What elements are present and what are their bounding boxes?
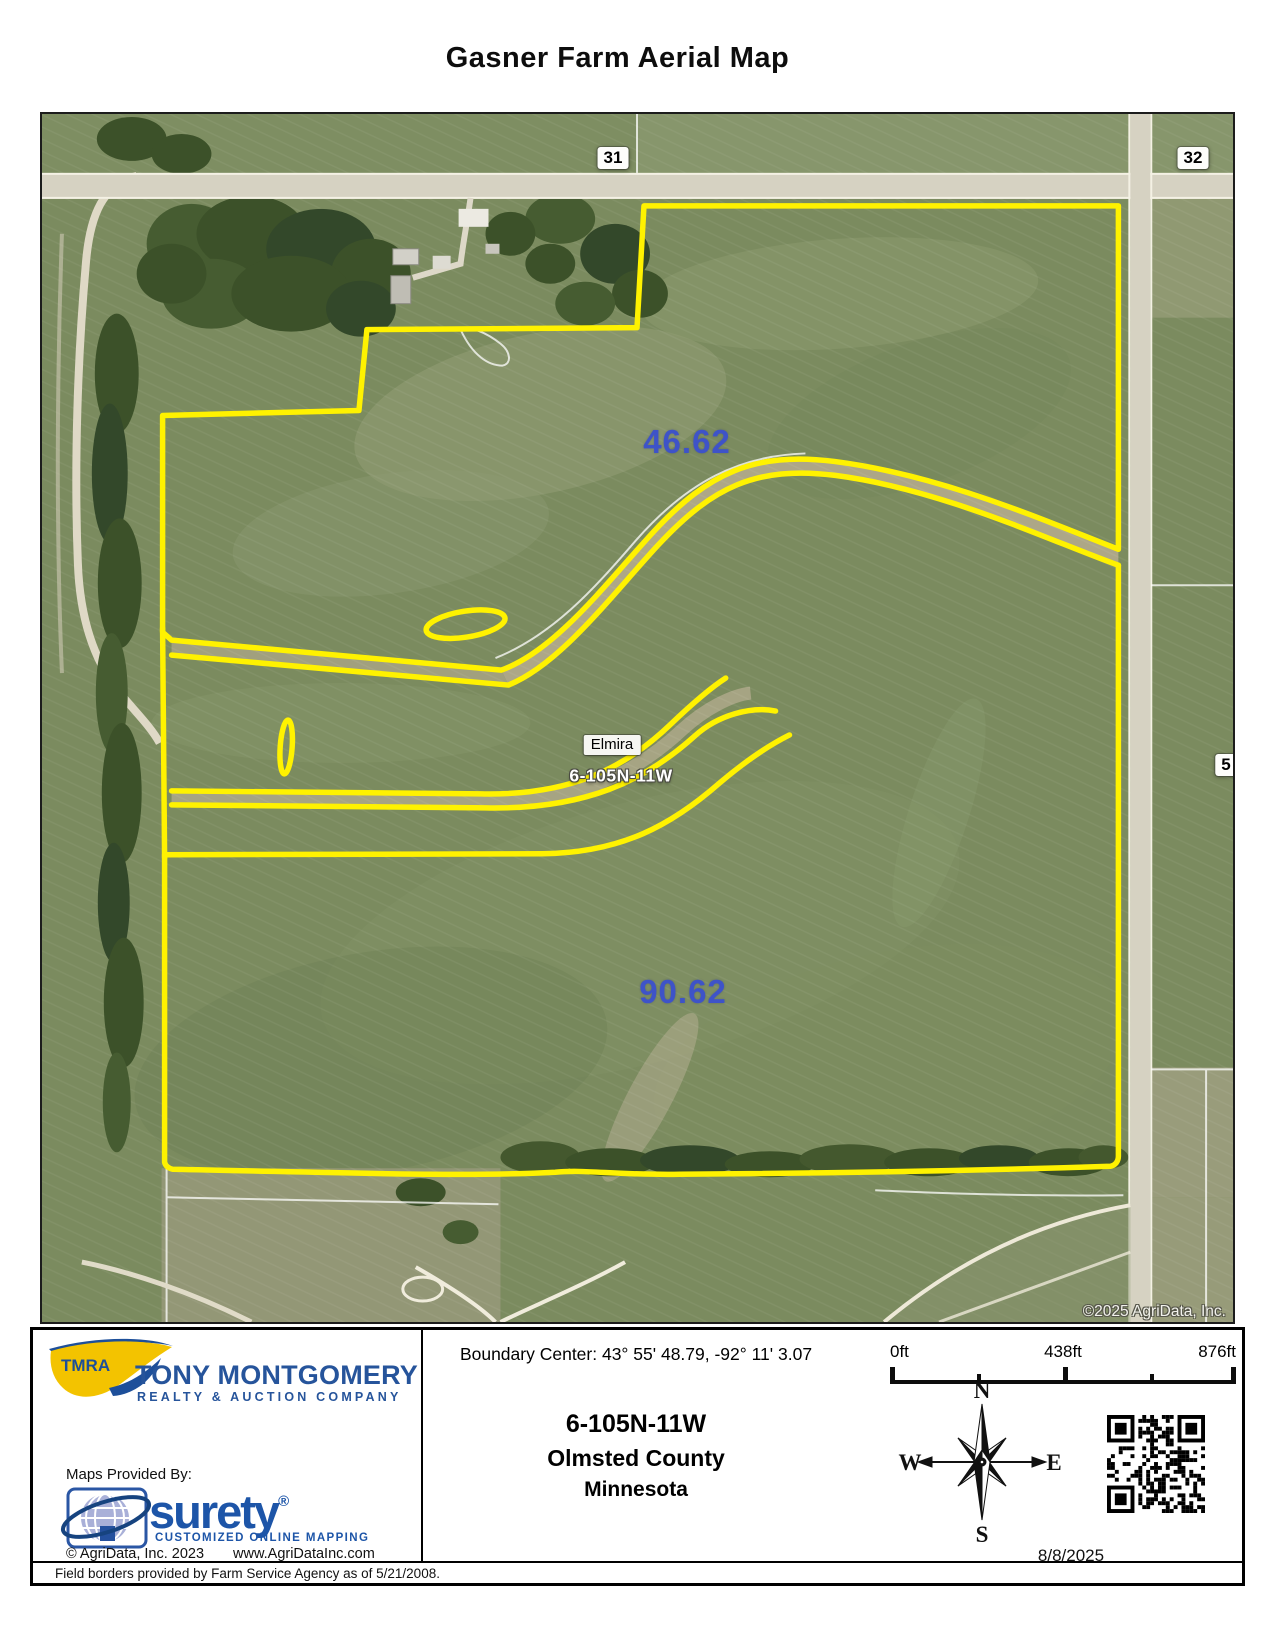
footer-panel: TMRA TONY MONTGOMERY REALTY & AUCTION CO… (30, 1327, 1245, 1586)
location-state: Minnesota (424, 1478, 848, 1502)
aerial-terrain-graphic (42, 114, 1233, 1322)
scale-label-start: 0ft (890, 1342, 909, 1362)
brand-tagline: REALTY & AUCTION COMPANY (137, 1390, 437, 1404)
agridata-website: www.AgriDataInc.com (233, 1546, 375, 1562)
compass-north-label: N (974, 1378, 991, 1403)
compass-south-label: S (976, 1522, 989, 1547)
qr-code-pattern (1107, 1415, 1205, 1513)
brand-company-name: TONY MONTGOMERY (135, 1360, 435, 1391)
road-label-5: 5 (1215, 754, 1235, 776)
acreage-label-north: 46.62 (643, 423, 731, 461)
compass-west-label: W (899, 1450, 922, 1475)
township-label: 6-105N-11W (569, 766, 672, 787)
agridata-copyright: © AgriData, Inc. 2023 (66, 1546, 204, 1562)
registered-mark: ® (278, 1493, 289, 1510)
qr-code (1107, 1415, 1205, 1513)
disclaimer-bar: Field borders provided by Farm Service A… (33, 1561, 1242, 1583)
aerial-map: 31 32 5 46.62 90.62 Elmira 6-105N-11W ©2… (40, 112, 1235, 1324)
town-label: Elmira (584, 735, 641, 755)
surety-globe-icon (60, 1486, 156, 1550)
scale-label-end: 876ft (1198, 1342, 1236, 1362)
compass-east-label: E (1046, 1450, 1061, 1475)
acreage-label-south: 90.62 (639, 973, 727, 1011)
page: Gasner Farm Aerial Map (0, 0, 1275, 1650)
location-county: Olmsted County (424, 1445, 848, 1472)
map-copyright: ©2025 AgriData, Inc. (1083, 1303, 1226, 1321)
surety-logo-text: surety® (149, 1488, 289, 1535)
compass-rose-icon: N E S W (897, 1377, 1067, 1547)
boundary-center-coordinates: Boundary Center: 43° 55' 48.79, -92° 11'… (424, 1344, 848, 1365)
section-label-32: 32 (1178, 147, 1209, 169)
surety-tagline: CUSTOMIZED ONLINE MAPPING (155, 1532, 369, 1544)
scale-tick (890, 1367, 895, 1384)
disclaimer-text: Field borders provided by Farm Service A… (55, 1566, 440, 1581)
page-title: Gasner Farm Aerial Map (0, 42, 1235, 75)
tmra-badge: TMRA (61, 1356, 110, 1375)
location-township: 6-105N-11W (424, 1410, 848, 1439)
maps-provided-by-label: Maps Provided By: (66, 1466, 192, 1483)
section-label-31: 31 (598, 147, 629, 169)
scale-tick (1231, 1367, 1236, 1384)
scale-label-middle: 438ft (1044, 1342, 1082, 1362)
surety-wordmark: surety (149, 1485, 278, 1538)
scale-tick (1150, 1374, 1154, 1384)
